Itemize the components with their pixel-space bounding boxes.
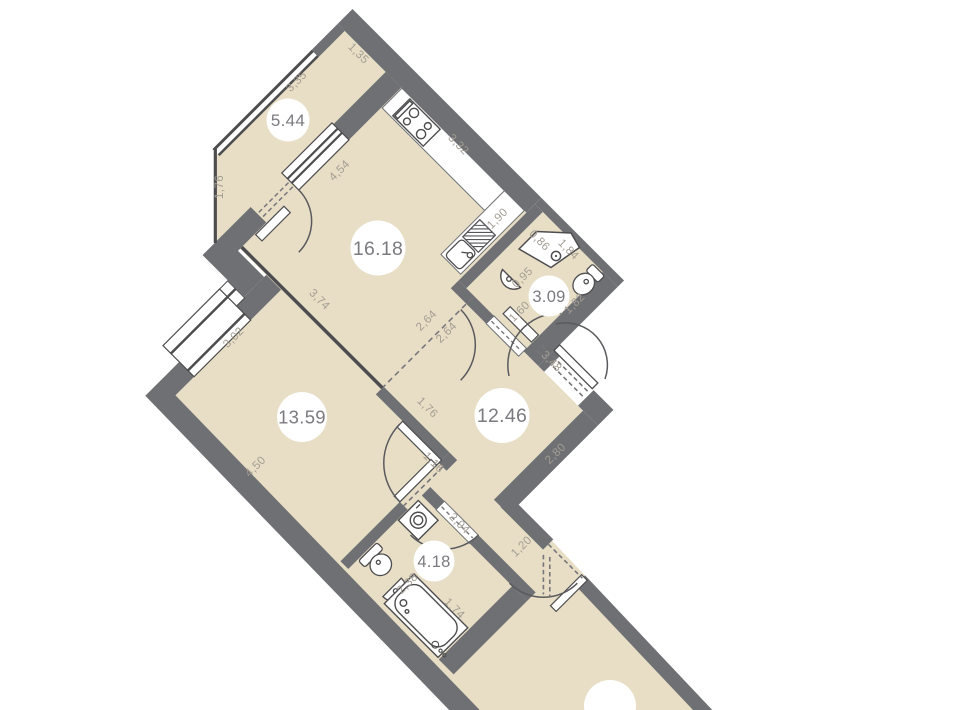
svg-text:13.59: 13.59 — [278, 407, 326, 428]
svg-text:5.44: 5.44 — [271, 111, 305, 130]
svg-text:4.18: 4.18 — [417, 553, 450, 571]
svg-text:12.46: 12.46 — [477, 405, 527, 427]
svg-text:1,76: 1,76 — [214, 175, 226, 199]
svg-text:3.09: 3.09 — [532, 288, 565, 306]
svg-text:16.18: 16.18 — [353, 238, 403, 260]
